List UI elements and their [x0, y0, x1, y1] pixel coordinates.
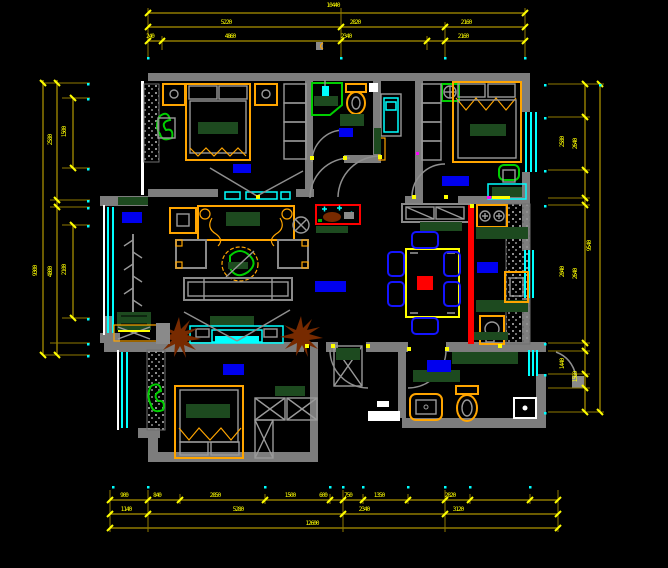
paper-holder-icon [514, 398, 536, 418]
dimension-label: 600 [319, 493, 327, 499]
wardrobe-icon [422, 84, 441, 160]
dimension-label: 240 [146, 34, 154, 40]
chair-icon [388, 252, 404, 276]
dimension-label: 10440 [326, 3, 339, 9]
bench-icon [117, 312, 151, 330]
dimension-label: 4860 [225, 34, 235, 40]
dimension-label: 2850 [210, 493, 220, 499]
chair-icon [412, 318, 438, 334]
wardrobe-icon [255, 398, 317, 458]
dimension-label: 2820 [350, 20, 360, 26]
room-label-living-bay [122, 212, 142, 223]
dimension-label: 3120 [453, 507, 463, 513]
dimension-label: 2340 [359, 507, 369, 513]
dimension-label: 2160 [458, 34, 468, 40]
chair-icon [499, 165, 519, 182]
entry-hall [310, 156, 380, 388]
dimension-label: 2160 [461, 20, 471, 26]
dimension-label: 1350 [374, 493, 384, 499]
coffee-table-icon [184, 278, 292, 300]
bedroom-bottom-left-furniture [175, 386, 317, 458]
plan-note-box [368, 411, 400, 421]
room-label-hallway [315, 281, 346, 292]
dimension-label: 2580 [560, 137, 566, 147]
duct-shaft-icon [334, 346, 362, 386]
dimension-label: 9540 [587, 241, 593, 251]
dimension-label: 2100 [62, 265, 68, 275]
shoe-cabinet-icon [316, 205, 360, 224]
room-label-bathroom-bottom-right [427, 360, 451, 372]
room-label-bathroom-top [339, 128, 353, 137]
dimension-label: 2820 [445, 493, 455, 499]
dimension-label: 1440 [560, 359, 566, 369]
stove-icon [477, 205, 507, 227]
dining-furniture [388, 204, 474, 344]
potted-plant-icon [222, 247, 258, 281]
dimension-label: 2040 [560, 267, 566, 277]
dimension-label: 2580 [48, 135, 54, 145]
chair-icon [412, 232, 438, 248]
toilet-icon [346, 84, 366, 114]
armchair-icon [176, 240, 206, 268]
dimension-label: 1500 [62, 127, 68, 137]
room-label-kitchen [477, 262, 498, 273]
dimension-label: 4800 [48, 267, 54, 277]
washing-machine-icon [379, 94, 401, 160]
plan-note-glyph [377, 401, 389, 407]
dimension-label: 2640 [573, 269, 579, 279]
wardrobe-icon [284, 84, 306, 159]
desk-icon [487, 184, 526, 199]
chair-icon [388, 282, 404, 306]
accent-partition [468, 205, 474, 344]
dimension-label: 5220 [221, 20, 231, 26]
chair-icon [444, 252, 460, 276]
room-label-bedroom-top-right [442, 176, 469, 186]
dimension-label: 900 [120, 493, 128, 499]
dimension-label: 2340 [341, 34, 351, 40]
room-label-bedroom-top-left [233, 164, 251, 173]
bedroom-top-left-furniture [157, 84, 306, 196]
dimension-label: 12600 [305, 521, 318, 527]
dimension-label: 5280 [233, 507, 243, 513]
toilet-icon [456, 386, 478, 421]
coat-rack-icon [124, 234, 142, 316]
cad-viewport: 1044052202820216024048602340216090084028… [0, 0, 668, 568]
shower-icon [312, 80, 342, 115]
dimension-label: 9300 [33, 266, 39, 276]
dimension-label: 840 [153, 493, 161, 499]
room-label-bedroom-bottom-left [223, 364, 244, 375]
dimension-label: 2640 [573, 139, 579, 149]
chair-icon [444, 282, 460, 306]
living-room-furniture [117, 197, 323, 358]
bathroom-top-fixtures [312, 80, 401, 162]
armchair-icon [278, 240, 308, 268]
dimension-label: 750 [344, 493, 352, 499]
sideboard-icon [402, 204, 470, 231]
dimension-label: 1560 [573, 372, 579, 382]
dimension-label: 1500 [285, 493, 295, 499]
bedroom-top-right-furniture [412, 82, 526, 199]
dimension-label: 1140 [121, 507, 131, 513]
sink-icon [410, 394, 442, 420]
